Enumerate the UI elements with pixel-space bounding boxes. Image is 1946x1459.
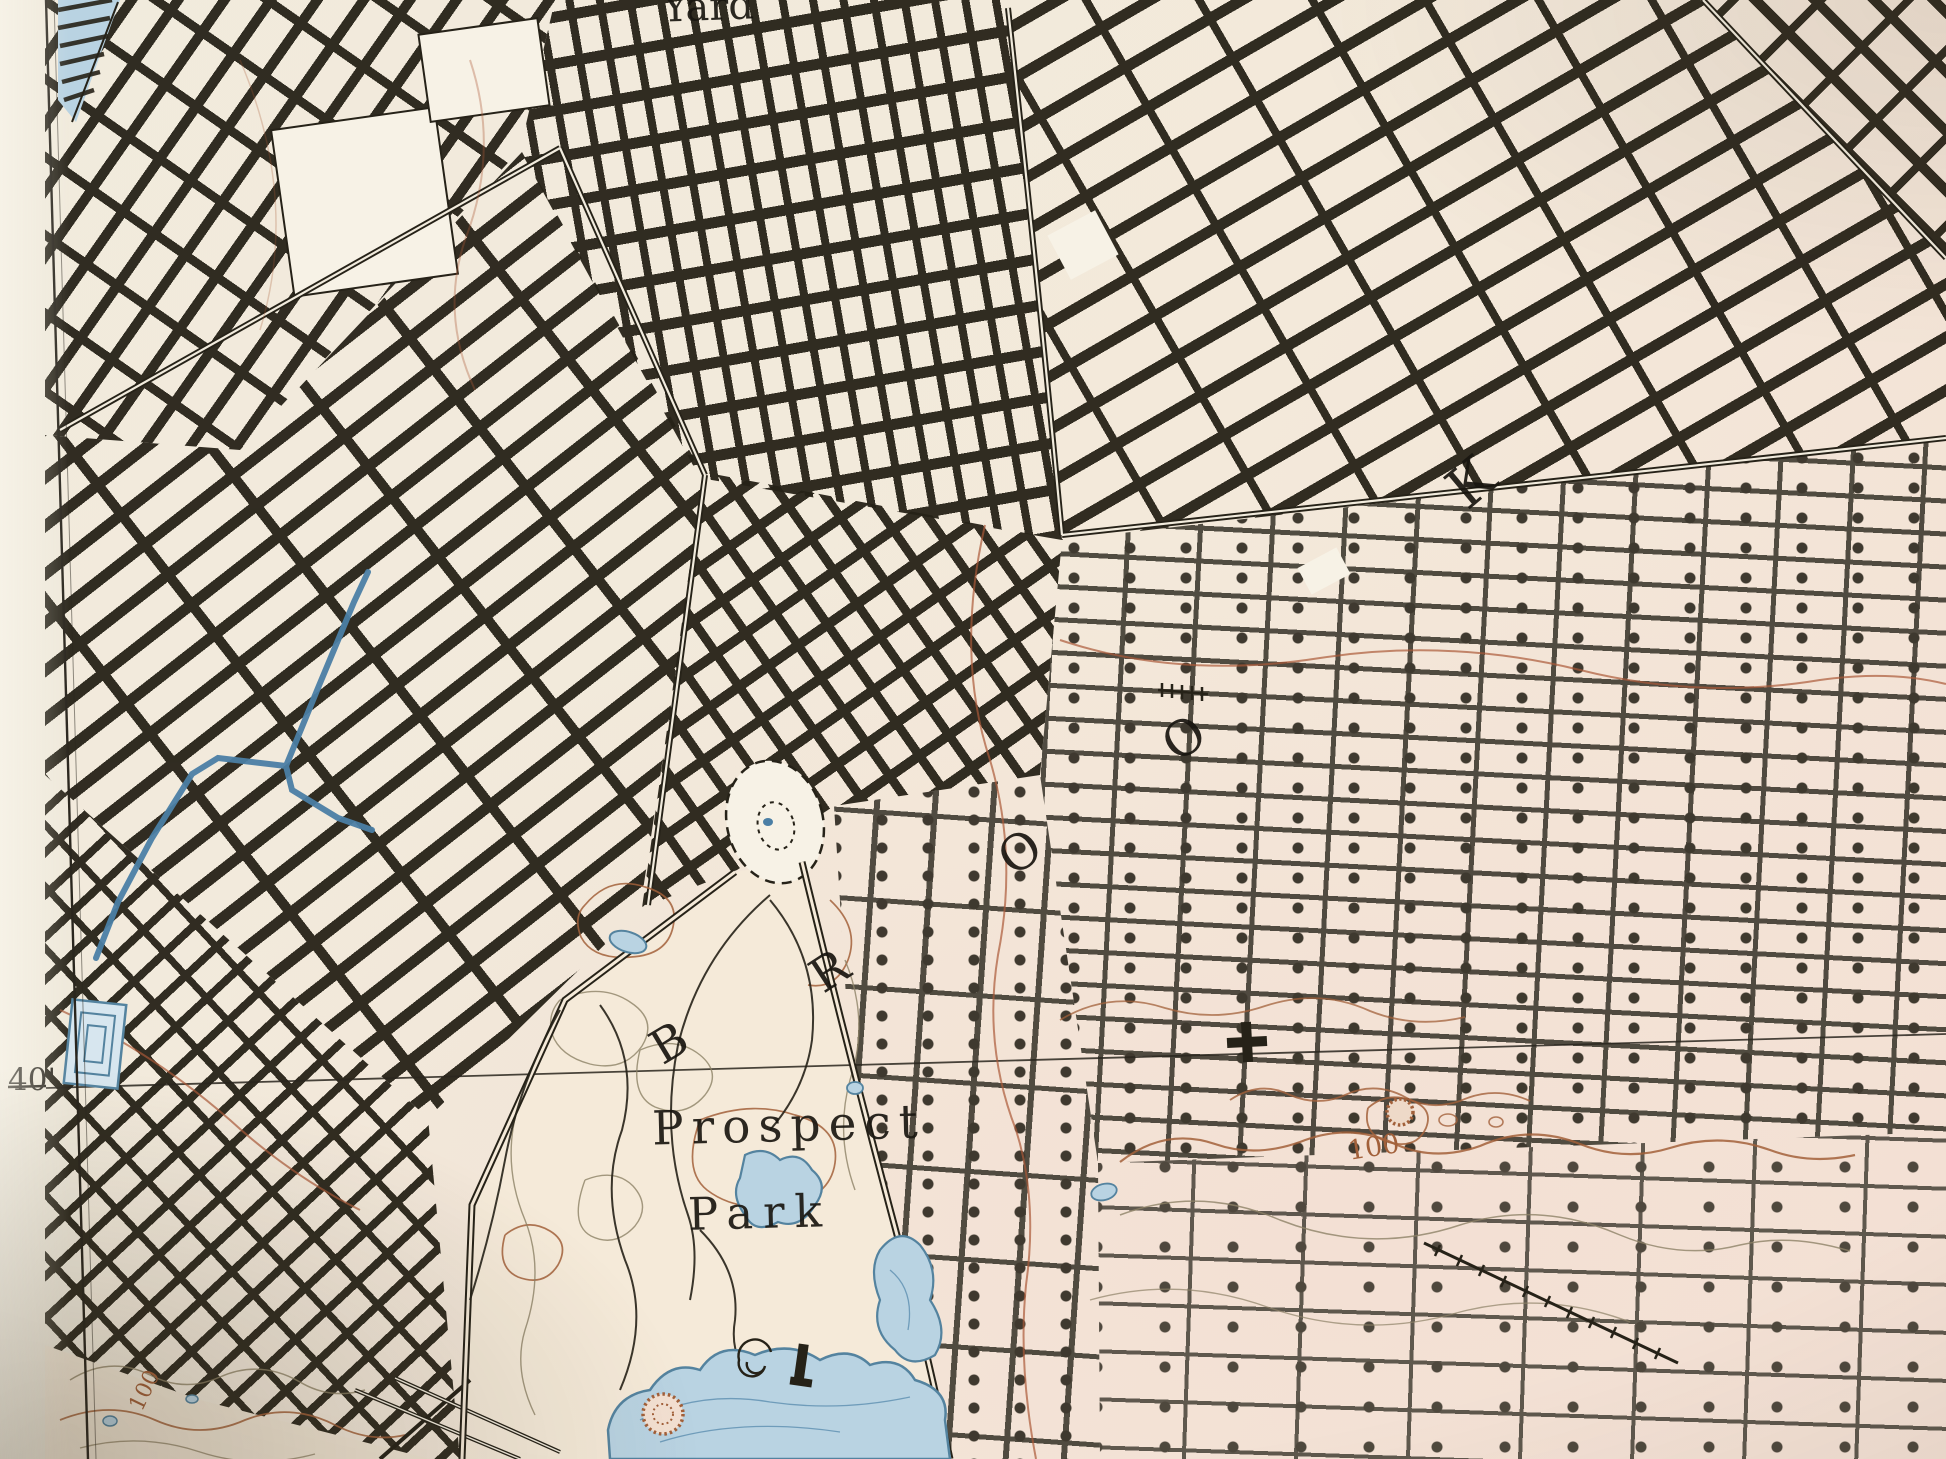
map-photo: B R O O K Yard Prospect Park 40' 100 100 — [0, 0, 1946, 1459]
